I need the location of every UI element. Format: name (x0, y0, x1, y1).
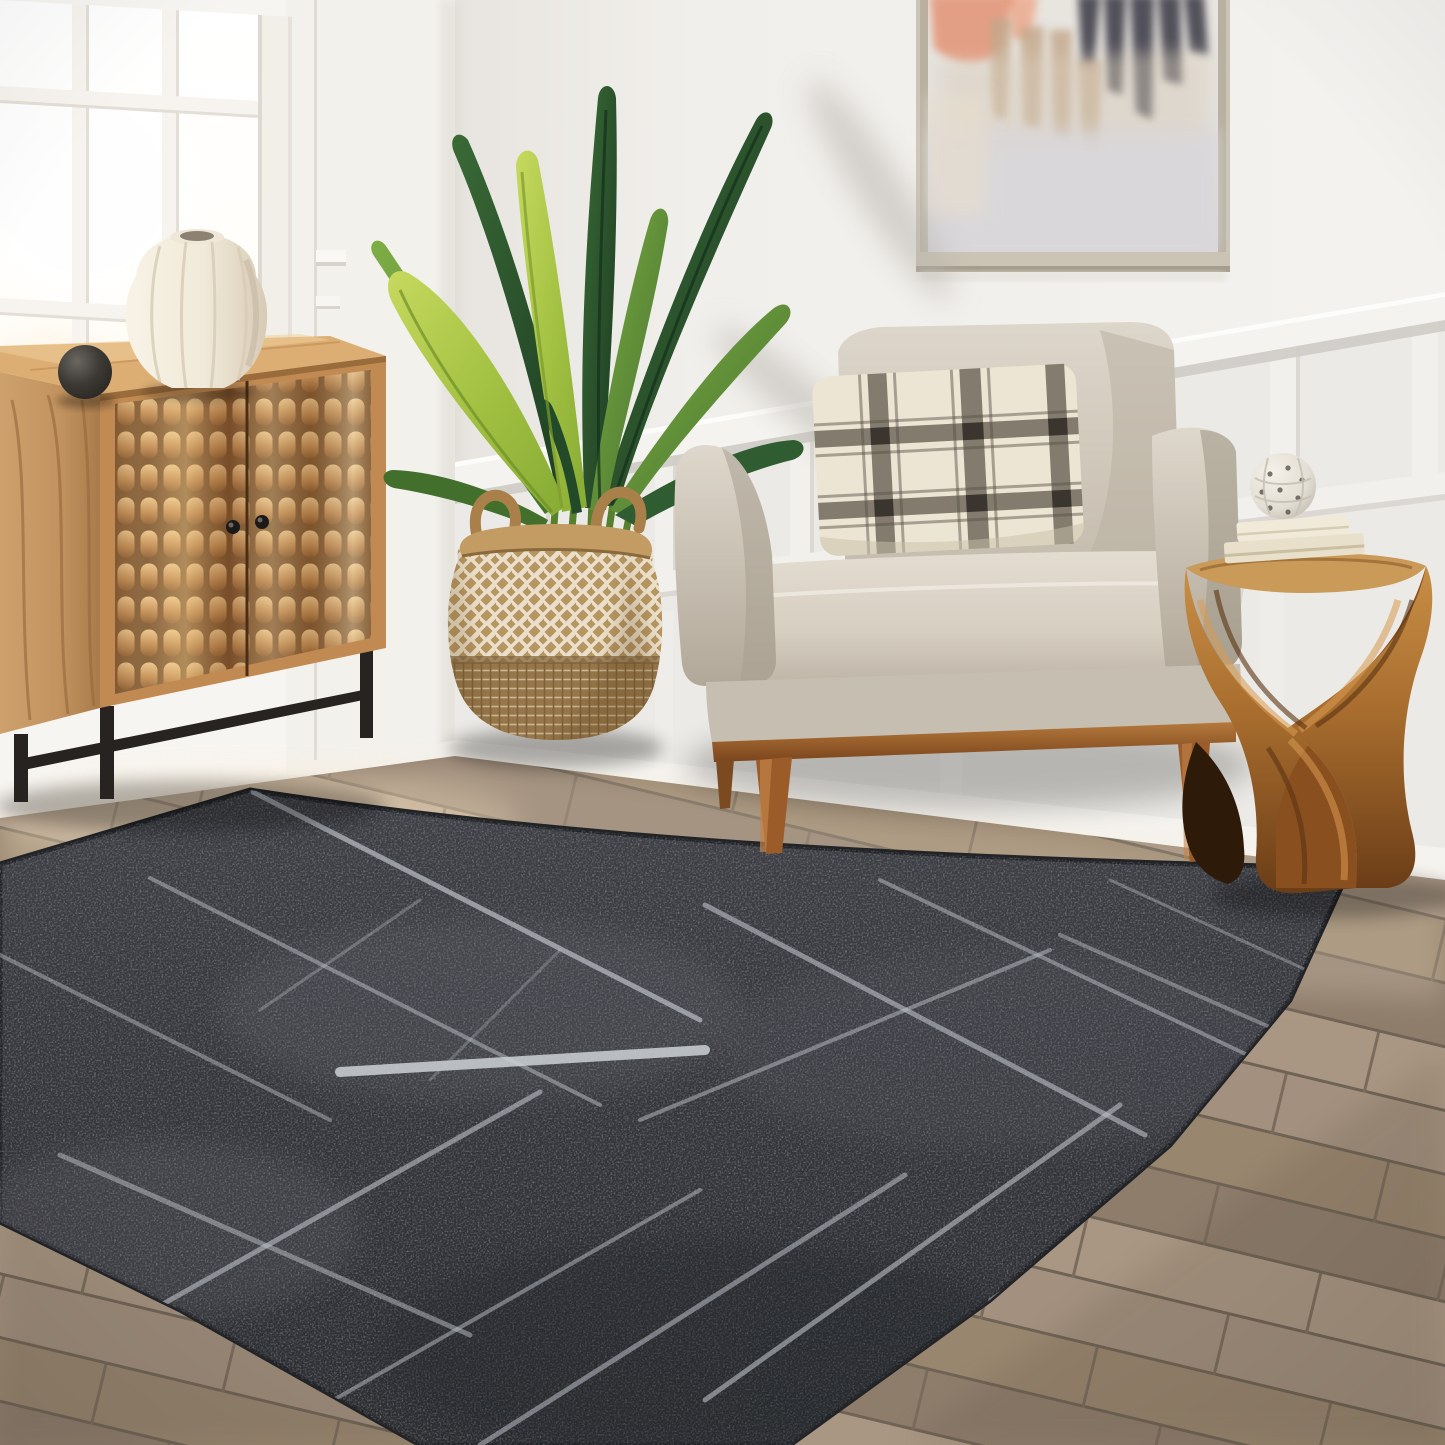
room-photo: Living room with charcoal abstract-line … (0, 0, 1445, 1445)
scene-svg (0, 0, 1445, 1445)
vignette (0, 0, 1445, 1445)
